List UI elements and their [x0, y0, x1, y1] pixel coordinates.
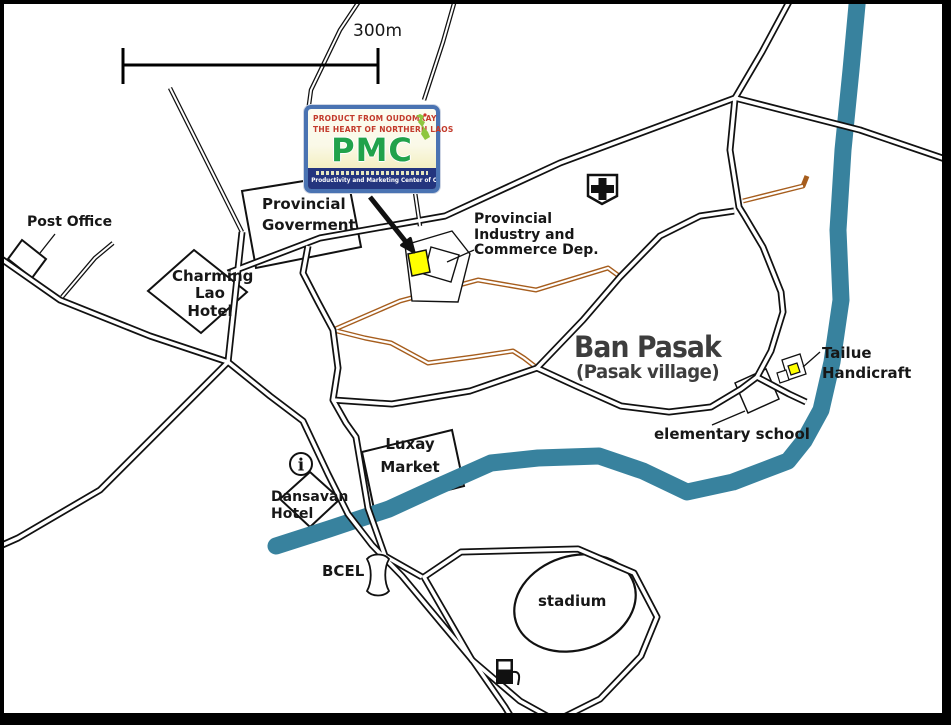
pmc-logo-footer: Productivity and Marketing Center of Oud…	[311, 177, 433, 184]
label-tailue-handicraft: Tailue Handicraft	[822, 343, 911, 384]
label-tailue-line2: Handicraft	[822, 363, 911, 383]
tailue-small-building	[777, 370, 789, 383]
label-elementary-school: elementary school	[654, 426, 810, 443]
label-industry-line2: Industry and	[474, 228, 599, 244]
gas-pump-icon	[496, 659, 519, 685]
cross-shield-icon	[588, 175, 617, 204]
label-charming-line1: Charming	[172, 268, 248, 285]
label-luxay-line1: Luxay	[365, 433, 455, 456]
info-icon: i	[290, 453, 312, 476]
label-charming-line2: Lao Hotel	[172, 285, 248, 320]
town-map: i 300m Post Office Provincial Goverment …	[0, 0, 951, 725]
dirt-road-upper-core	[333, 268, 619, 330]
label-ban-pasak: Ban Pasak	[574, 331, 721, 364]
pmc-location-building	[408, 250, 430, 276]
label-tailue-line1: Tailue	[822, 343, 911, 363]
label-provincial-government-line2: Goverment	[262, 215, 356, 236]
label-dansavan-hotel: Dansavan Hotel	[271, 489, 348, 523]
label-provincial-industry: Provincial Industry and Commerce Dep.	[474, 212, 599, 259]
label-post-office: Post Office	[27, 214, 112, 230]
label-dansavan-line1: Dansavan	[271, 489, 348, 506]
label-luxay-market: Luxay Market	[365, 433, 455, 478]
label-dansavan-line2: Hotel	[271, 506, 348, 523]
pmc-logo-band: Productivity and Marketing Center of Oud…	[308, 168, 436, 189]
label-industry-line1: Provincial	[474, 212, 599, 228]
tailue-yellow-building	[788, 363, 800, 375]
label-pasak-village: (Pasak village)	[576, 362, 719, 384]
label-industry-line3: Commerce Dep.	[474, 243, 599, 259]
road-southwest	[0, 362, 228, 546]
dirt-road-stub-core	[743, 186, 803, 201]
laos-map-icon	[413, 113, 431, 141]
bcel-marker-shape	[367, 555, 389, 596]
pmc-logo: PRODUCT FROM OUDOMXAY THE HEART OF NORTH…	[304, 105, 440, 193]
road-top-minor-1	[308, 0, 360, 112]
info-icon-glyph: i	[298, 456, 305, 476]
label-charming-lao-hotel: Charming Lao Hotel	[172, 268, 248, 320]
label-luxay-line2: Market	[365, 456, 455, 479]
scale-bar	[123, 48, 378, 84]
label-bcel: BCEL	[322, 563, 364, 580]
label-provincial-government: Provincial Goverment	[262, 194, 356, 236]
post-office-building	[8, 240, 46, 278]
scale-label: 300m	[353, 22, 402, 42]
label-provincial-government-line1: Provincial	[262, 194, 356, 215]
map-canvas: i	[0, 0, 951, 725]
label-stadium: stadium	[538, 593, 606, 610]
pmc-logo-lao-script	[316, 171, 428, 175]
